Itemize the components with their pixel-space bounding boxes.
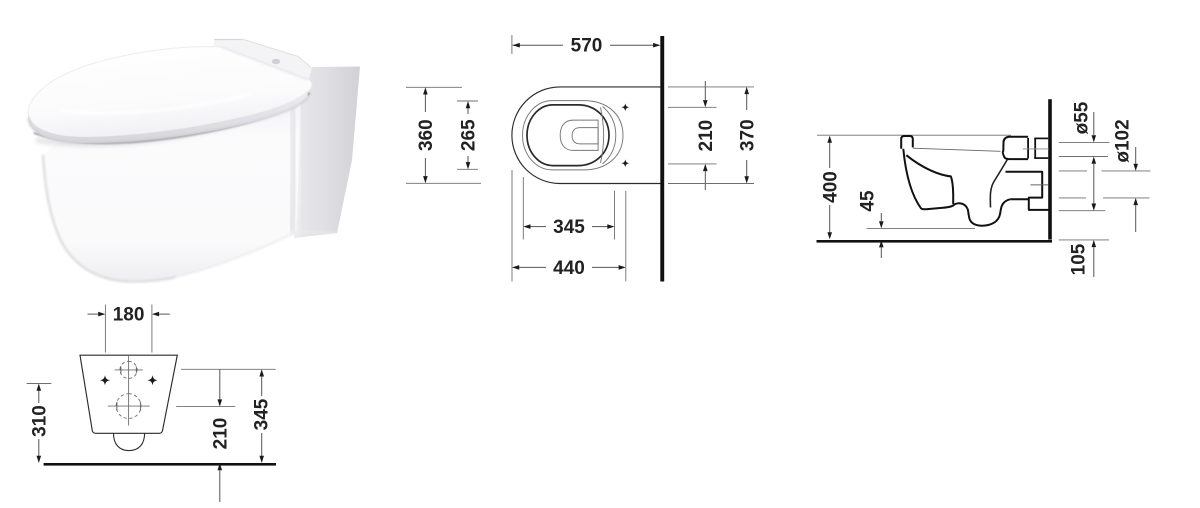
svg-text:105: 105 <box>1068 243 1089 275</box>
svg-text:345: 345 <box>251 398 272 430</box>
svg-text:45: 45 <box>858 190 879 212</box>
svg-text:370: 370 <box>737 119 758 151</box>
svg-text:180: 180 <box>113 305 145 326</box>
svg-text:570: 570 <box>571 36 603 57</box>
svg-text:360: 360 <box>416 119 437 151</box>
svg-text:310: 310 <box>29 405 50 437</box>
svg-text:400: 400 <box>820 171 841 203</box>
svg-text:210: 210 <box>696 120 717 152</box>
svg-text:ø55: ø55 <box>1071 101 1092 134</box>
svg-text:265: 265 <box>459 119 480 151</box>
svg-text:440: 440 <box>553 258 585 279</box>
svg-text:345: 345 <box>553 217 585 238</box>
svg-text:ø102: ø102 <box>1112 119 1133 162</box>
svg-text:210: 210 <box>210 418 231 450</box>
